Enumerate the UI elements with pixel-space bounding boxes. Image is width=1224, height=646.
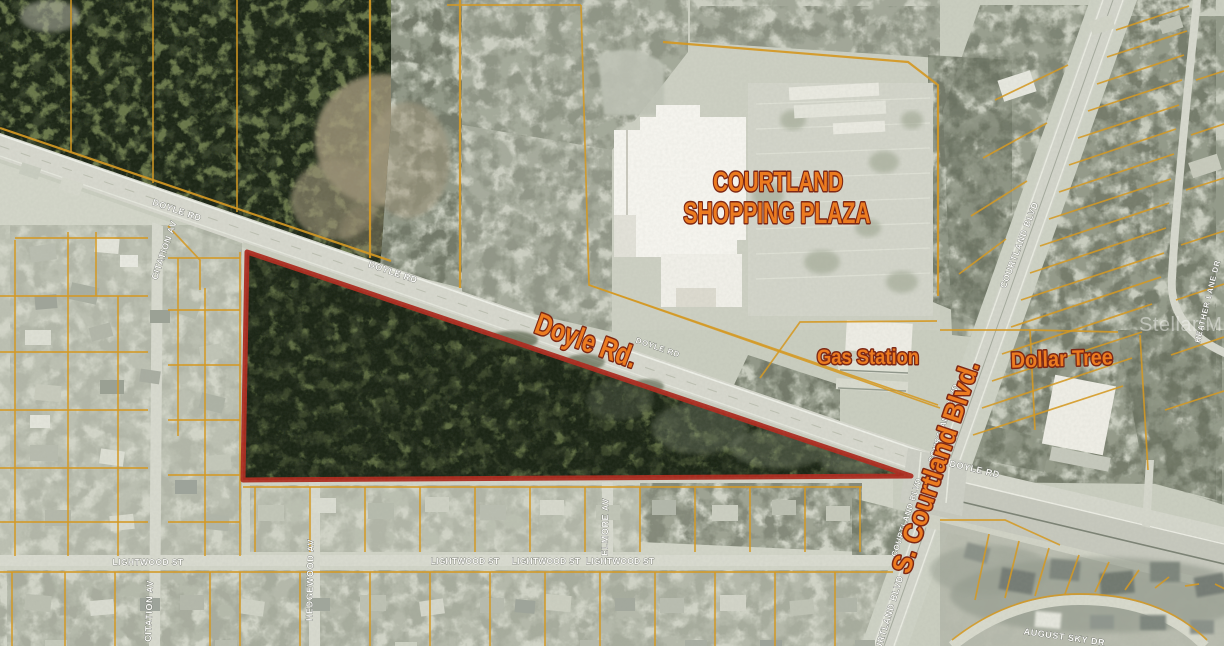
svg-text:Stellar MLS: Stellar MLS bbox=[1139, 314, 1224, 336]
